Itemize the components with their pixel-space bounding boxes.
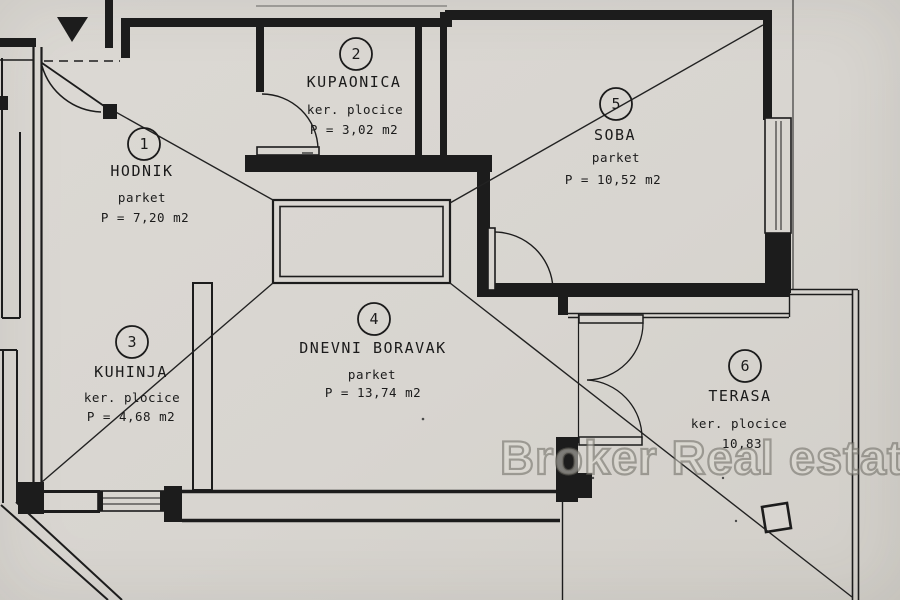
room-labels: 1 HODNIK parket P = 7,20 m2 2 KUPAONICA …: [84, 38, 787, 451]
room-label-kuhinja: 3 KUHINJA ker. plocice P = 4,68 m2: [84, 326, 180, 424]
wall-soba-south: [477, 283, 790, 297]
room-1-number: 1: [139, 135, 148, 153]
room-6-name: TERASA: [708, 387, 771, 405]
wall-shaft: [440, 12, 447, 157]
balcony-double-door: [579, 313, 644, 445]
room-3-number: 3: [127, 333, 136, 351]
room-4-floor: parket: [348, 367, 396, 382]
floor-plan: 1 HODNIK parket P = 7,20 m2 2 KUPAONICA …: [0, 0, 900, 600]
wall-kitchen-corner: [18, 482, 44, 514]
room-3-area: P = 4,68 m2: [87, 409, 175, 424]
watermark: Broker Real estate: [500, 430, 900, 485]
kitchen-window: [98, 491, 166, 511]
room-label-kupaonica: 2 KUPAONICA ker. plocice P = 3,02 m2: [307, 38, 404, 137]
room-2-number: 2: [351, 45, 360, 63]
room-5-area: P = 10,52 m2: [565, 172, 661, 187]
room-6-number: 6: [740, 357, 749, 375]
wall-bathroom-right: [415, 20, 422, 157]
room-5-name: SOBA: [594, 126, 636, 144]
room-1-floor: parket: [118, 190, 166, 205]
floor-plan-drawing: 1 HODNIK parket P = 7,20 m2 2 KUPAONICA …: [0, 0, 900, 600]
wall-top-west: [126, 18, 452, 27]
room-label-hodnik: 1 HODNIK parket P = 7,20 m2: [101, 128, 189, 225]
room-2-floor: ker. plocice: [307, 102, 403, 117]
room-6-floor: ker. plocice: [691, 416, 787, 431]
wall-soba-southeast: [765, 231, 791, 293]
room-5-number: 5: [611, 95, 620, 113]
diagonal-kuhinja: [42, 283, 273, 482]
soba-door: [488, 228, 553, 290]
soba-window: [765, 118, 791, 233]
room-5-floor: parket: [592, 150, 640, 165]
room-label-dnevni-boravak: 4 DNEVNI BORAVAK parket P = 13,74 m2: [299, 303, 446, 400]
room-2-name: KUPAONICA: [307, 73, 402, 91]
room-4-number: 4: [369, 310, 378, 328]
neighbor-structures: [0, 38, 122, 600]
terrace-column: [762, 503, 791, 532]
wall-kitchen-divider: [193, 283, 212, 490]
wall-top-east: [445, 10, 772, 20]
wall-bathroom-south: [245, 155, 492, 172]
room-4-area: P = 13,74 m2: [325, 385, 421, 400]
room-3-floor: ker. plocice: [84, 390, 180, 405]
entrance-arrow-icon: [57, 17, 88, 42]
room-1-area: P = 7,20 m2: [101, 210, 189, 225]
room-1-name: HODNIK: [110, 162, 173, 180]
room-2-area: P = 3,02 m2: [310, 122, 398, 137]
room-3-name: KUHINJA: [94, 363, 168, 381]
neighbor-wall-stub: [0, 38, 36, 47]
room-label-soba: 5 SOBA parket P = 10,52 m2: [565, 88, 661, 187]
wall-soba-east: [763, 12, 772, 120]
wall-entry-jamb-left: [105, 0, 113, 48]
room-4-name: DNEVNI BORAVAK: [299, 339, 446, 357]
wall-bathroom-left: [256, 20, 264, 92]
central-rectangle: [273, 200, 450, 283]
neighbor-angled-wall: [1, 505, 108, 600]
